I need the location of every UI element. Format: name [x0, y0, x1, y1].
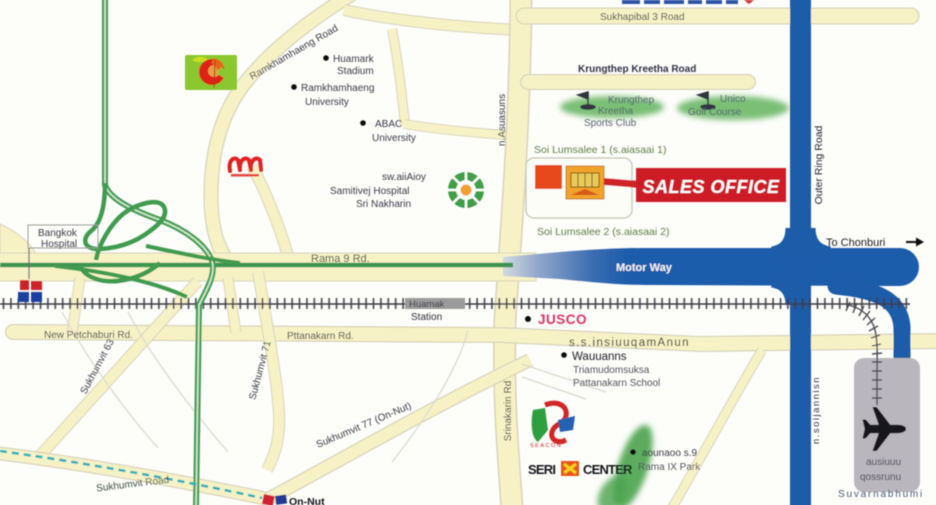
svg-text:Pattanakarn School: Pattanakarn School [573, 378, 660, 389]
svg-text:Krungthep Kreetha Road: Krungthep Kreetha Road [578, 64, 696, 75]
svg-text:s.s.insiuuqamAnun: s.s.insiuuqamAnun [569, 337, 690, 349]
svg-text:Kreetha: Kreetha [598, 106, 633, 117]
svg-text:Triamudomsuksa: Triamudomsuksa [573, 365, 650, 376]
svg-text:Unico: Unico [720, 94, 746, 105]
svg-text:Huamak: Huamak [409, 299, 445, 310]
svg-text:Huamark: Huamark [333, 54, 375, 65]
svg-text:Pttanakarn Rd.: Pttanakarn Rd. [287, 331, 354, 342]
svg-text:SEACON: SEACON [530, 443, 562, 449]
svg-text:Wauuanns: Wauuanns [572, 351, 627, 363]
svg-text:Soi Lumsalee 2 (s.aiasaai 2): Soi Lumsalee 2 (s.aiasaai 2) [537, 226, 670, 238]
svg-text:Sports Club: Sports Club [584, 118, 637, 129]
svg-text:SERI: SERI [528, 462, 555, 477]
svg-text:aounaoo s.9: aounaoo s.9 [642, 448, 697, 459]
svg-text:Motor Way: Motor Way [616, 262, 673, 274]
svg-text:Suvarnabhumi: Suvarnabhumi [838, 489, 924, 500]
svg-text:CENTER: CENTER [583, 462, 633, 477]
svg-text:Hospital: Hospital [41, 239, 77, 250]
svg-text:Bangkok: Bangkok [38, 228, 78, 239]
svg-text:Krungthep: Krungthep [608, 95, 655, 106]
svg-text:Sukhapibal 3 Road: Sukhapibal 3 Road [600, 12, 685, 23]
svg-text:Outer Ring Road: Outer Ring Road [813, 125, 825, 204]
svg-text:Sri Nakharin: Sri Nakharin [356, 199, 411, 210]
svg-text:Srinakarin Rd: Srinakarin Rd [503, 381, 514, 442]
svg-text:SALES OFFICE: SALES OFFICE [642, 177, 780, 197]
svg-text:Rama IX Park: Rama IX Park [638, 462, 701, 473]
svg-text:Rama 9 Rd.: Rama 9 Rd. [311, 253, 370, 265]
svg-text:Golf Course: Golf Course [688, 107, 742, 118]
svg-text:New Petchaburi Rd.: New Petchaburi Rd. [44, 330, 133, 341]
svg-text:Soi Lumsalee 1 (s.aiasaai 1): Soi Lumsalee 1 (s.aiasaai 1) [534, 144, 667, 156]
svg-text:Stadium: Stadium [337, 66, 374, 77]
svg-text:sw.aiiAioy: sw.aiiAioy [382, 172, 426, 183]
svg-text:University: University [372, 133, 416, 144]
svg-text:n.soijannisn: n.soijannisn [811, 376, 822, 444]
svg-text:ABAC: ABAC [375, 119, 402, 130]
svg-text:On-Nut: On-Nut [289, 496, 325, 505]
svg-text:ausiuuu: ausiuuu [866, 457, 901, 468]
svg-text:Samitivej Hospital: Samitivej Hospital [330, 186, 409, 197]
svg-text:qossrunu: qossrunu [860, 472, 901, 483]
svg-text:To Chonburi: To Chonburi [826, 237, 885, 249]
svg-text:Station: Station [411, 312, 442, 323]
svg-text:University: University [305, 97, 349, 108]
svg-text:Ramkhamhaeng: Ramkhamhaeng [301, 83, 374, 94]
svg-text:JUSCO: JUSCO [538, 312, 587, 327]
svg-text:n.Asuasuns: n.Asuasuns [497, 94, 508, 146]
